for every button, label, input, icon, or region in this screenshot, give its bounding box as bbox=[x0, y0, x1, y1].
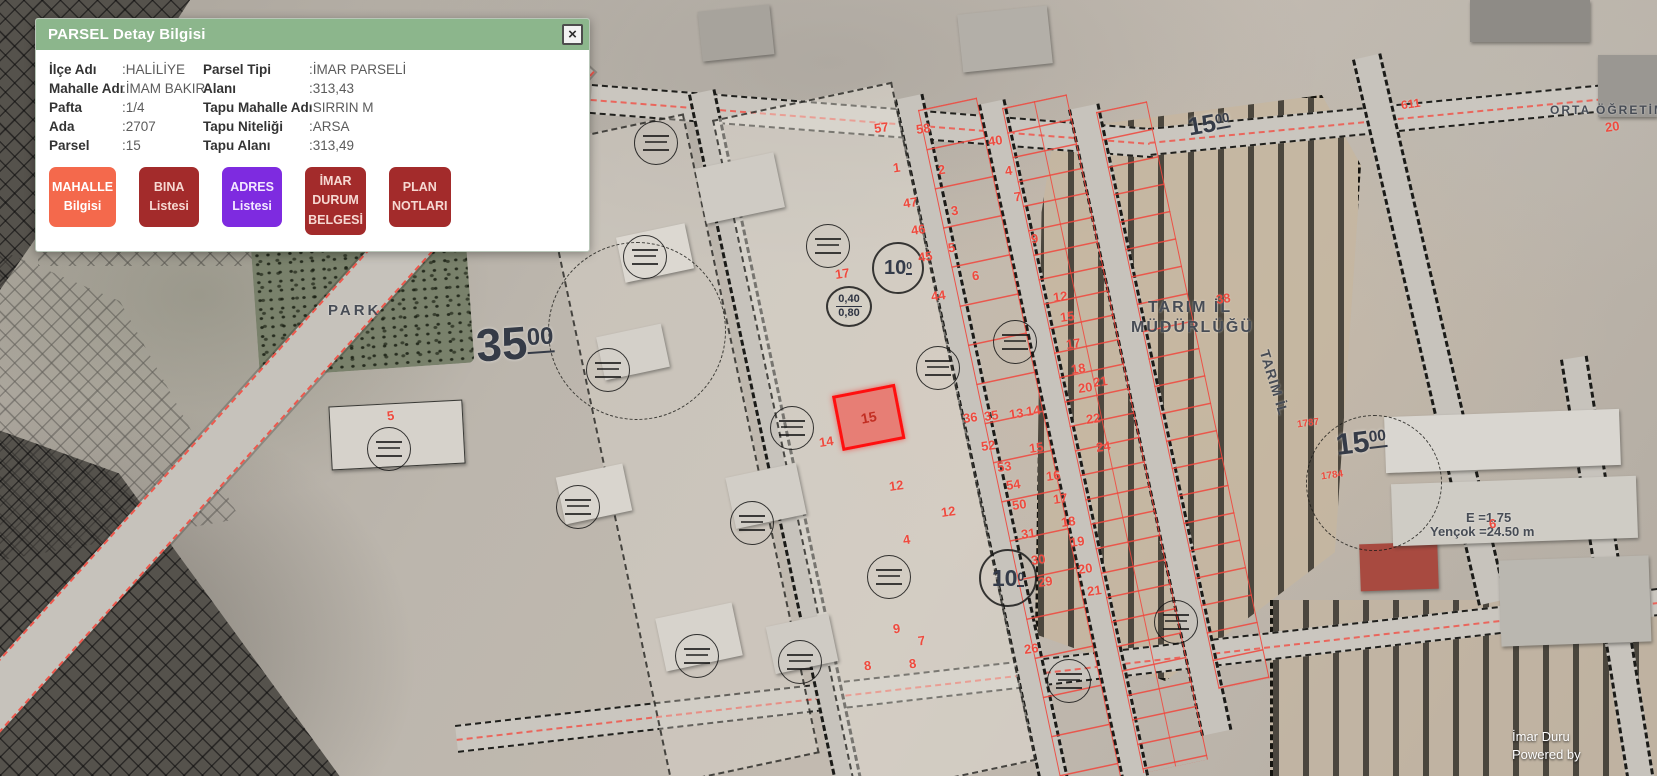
field-value: :HALİLİYE bbox=[122, 60, 203, 79]
field-label: Parsel bbox=[49, 136, 122, 155]
map-attribution: İmar DuruPowered by bbox=[1512, 728, 1581, 764]
road-width-label: 3500 bbox=[474, 313, 555, 372]
area-label: Yençok =24.50 m bbox=[1430, 524, 1534, 539]
area-label: MÜDÜRLÜĞÜ bbox=[1131, 319, 1254, 337]
parcel-number: 21 bbox=[1086, 582, 1102, 599]
attribution-line: Powered by bbox=[1512, 746, 1581, 764]
parcel-number: 29 bbox=[1037, 573, 1053, 590]
building bbox=[957, 5, 1053, 72]
field-value: :2707 bbox=[122, 117, 203, 136]
button-label-line: DURUM bbox=[312, 191, 359, 210]
parcel-number: 17 bbox=[1065, 335, 1081, 352]
parcel-number: 52 bbox=[980, 437, 996, 454]
taks-value: 0,40 bbox=[836, 293, 861, 307]
button-label-line: BINA bbox=[154, 178, 185, 197]
parcel-detail-panel: PARSEL Detay Bilgisi × İlçe Adı:HALİLİYE… bbox=[35, 18, 590, 252]
parcel-number: 47 bbox=[902, 194, 918, 211]
parcel-number: 14 bbox=[1025, 402, 1041, 419]
parcel-number: 54 bbox=[1005, 476, 1021, 493]
imar-durum-button[interactable]: İMARDURUMBELGESİ bbox=[305, 167, 366, 235]
parcel-number: 36 bbox=[962, 409, 978, 426]
building bbox=[698, 4, 775, 61]
parcel-number: 22 bbox=[1085, 410, 1101, 427]
area-label: PARK bbox=[328, 302, 381, 319]
panel-title: PARSEL Detay Bilgisi bbox=[48, 26, 206, 43]
button-label-line: Listesi bbox=[232, 197, 272, 216]
button-label-line: MAHALLE bbox=[52, 178, 113, 197]
parcel-number: 46 bbox=[910, 221, 926, 238]
parcel-number: 17 bbox=[1052, 490, 1068, 507]
kaks-value: 0,80 bbox=[838, 307, 859, 320]
area-label: ORTA ÖĞRETİM bbox=[1550, 103, 1657, 117]
road-width-decimal: 0 bbox=[1017, 570, 1024, 587]
parcel-number: 611 bbox=[1400, 96, 1421, 113]
panel-header: PARSEL Detay Bilgisi × bbox=[36, 19, 589, 50]
button-label-line: İMAR bbox=[320, 172, 352, 191]
field-label: Ada bbox=[49, 117, 122, 136]
survey-symbol-icon bbox=[675, 634, 719, 678]
field-label: İlçe Adı bbox=[49, 60, 122, 79]
field-label: Tapu Mahalle Adı bbox=[203, 98, 309, 117]
parcel-number: 44 bbox=[930, 287, 946, 304]
survey-symbol-icon bbox=[730, 501, 774, 545]
field-value: :İMAR PARSELİ bbox=[309, 60, 589, 79]
parcel-number: 35 bbox=[983, 407, 999, 424]
road-width-decimal: 00 bbox=[1368, 427, 1388, 449]
field-value: :313,49 bbox=[309, 136, 589, 155]
parcel-number: 12 bbox=[940, 503, 956, 520]
parcel-number: 18 bbox=[1070, 360, 1086, 377]
survey-symbol-icon bbox=[1047, 659, 1091, 703]
survey-symbol-icon bbox=[556, 485, 600, 529]
field-label: Alanı bbox=[203, 79, 309, 98]
field-label: Pafta bbox=[49, 98, 122, 117]
panel-buttons: MAHALLEBilgisiBINAListesiADRESListesiİMA… bbox=[36, 155, 589, 251]
survey-symbol-icon bbox=[770, 406, 814, 450]
survey-symbol-icon bbox=[806, 224, 850, 268]
field-value: :313,43 bbox=[309, 79, 589, 98]
parcel-number: 38 bbox=[1215, 290, 1231, 307]
parcel-number: 17 bbox=[834, 265, 850, 282]
parcel-number: 16 bbox=[1045, 467, 1061, 484]
close-icon[interactable]: × bbox=[562, 24, 583, 45]
survey-symbol-icon bbox=[916, 346, 960, 390]
road-width-label: 1500 bbox=[1334, 423, 1388, 463]
parcel-number: 15 bbox=[1059, 308, 1075, 325]
field-label: Tapu Niteliği bbox=[203, 117, 309, 136]
bina-listesi-button[interactable]: BINAListesi bbox=[139, 167, 199, 227]
field-value: :ARSA bbox=[309, 117, 589, 136]
parcel-number: 50 bbox=[1011, 496, 1027, 513]
parcel-number: 58 bbox=[915, 120, 931, 137]
parcel-number: 12 bbox=[888, 477, 904, 494]
field-label: Parsel Tipi bbox=[203, 60, 309, 79]
button-label-line: PLAN bbox=[403, 178, 437, 197]
field-value: :15 bbox=[122, 136, 203, 155]
survey-symbol-icon bbox=[1154, 600, 1198, 644]
parcel-number: 20 bbox=[1077, 560, 1093, 577]
parcel-number: 26 bbox=[1023, 640, 1039, 657]
field-label: Tapu Alanı bbox=[203, 136, 309, 155]
survey-symbol-icon bbox=[623, 235, 667, 279]
road-width-decimal: 00 bbox=[526, 322, 555, 354]
parcel-number: 12 bbox=[1052, 288, 1068, 305]
parcel-number: 18 bbox=[1060, 513, 1076, 530]
parcel-number: 20 bbox=[1604, 118, 1620, 135]
survey-symbol-icon bbox=[993, 320, 1037, 364]
parcel-number: 45 bbox=[917, 248, 933, 265]
warehouse bbox=[1499, 555, 1652, 646]
survey-symbol-icon bbox=[867, 555, 911, 599]
parcel-number: 13 bbox=[1008, 405, 1024, 422]
building bbox=[1470, 0, 1590, 42]
survey-symbol-icon bbox=[367, 427, 411, 471]
taks-kaks-ratio-symbol: 0,40 0,80 bbox=[826, 286, 872, 327]
parcel-number: 21 bbox=[1092, 373, 1108, 390]
parcel-number: 20 bbox=[1077, 379, 1093, 396]
button-label-line: ADRES bbox=[230, 178, 274, 197]
survey-symbol-icon bbox=[586, 348, 630, 392]
parcel-number: 19 bbox=[1069, 533, 1085, 550]
selected-parcel-highlight[interactable]: 15 bbox=[832, 384, 906, 451]
parcel-number: 53 bbox=[996, 458, 1012, 475]
attribution-line: İmar Duru bbox=[1512, 728, 1581, 746]
mahalle-bilgisi-button[interactable]: MAHALLEBilgisi bbox=[49, 167, 116, 227]
parcel-number: 15 bbox=[1028, 439, 1044, 456]
road-width-decimal: 0 bbox=[906, 261, 912, 275]
road-width-circle-label: 100 bbox=[979, 549, 1037, 607]
selected-parcel-number: 15 bbox=[860, 408, 878, 427]
parcel-number: 14 bbox=[818, 433, 834, 450]
field-label: Mahalle Adı bbox=[49, 79, 122, 98]
survey-symbol-icon bbox=[634, 121, 678, 165]
survey-symbol-icon bbox=[778, 640, 822, 684]
parcel-number: 30 bbox=[1030, 551, 1046, 568]
parcel-number: 31 bbox=[1020, 525, 1036, 542]
field-value: :İMAM BAKIR bbox=[122, 79, 203, 98]
parcel-number: 24 bbox=[1095, 438, 1111, 455]
road-width-decimal: 00 bbox=[1214, 109, 1231, 129]
field-value: :1/4 bbox=[122, 98, 203, 117]
button-label-line: Bilgisi bbox=[64, 197, 102, 216]
parcel-number: 40 bbox=[987, 132, 1003, 149]
button-label-line: NOTLARI bbox=[392, 197, 448, 216]
button-label-line: Listesi bbox=[149, 197, 189, 216]
parcel-fields: İlçe Adı:HALİLİYEParsel Tipi:İMAR PARSEL… bbox=[36, 50, 589, 155]
parcel-number: 57 bbox=[873, 119, 889, 136]
plan-notlari-button[interactable]: PLANNOTLARI bbox=[389, 167, 451, 227]
field-value: :SIRRIN M bbox=[309, 98, 589, 117]
button-label-line: BELGESİ bbox=[308, 211, 363, 230]
adres-listesi-button[interactable]: ADRESListesi bbox=[222, 167, 282, 227]
